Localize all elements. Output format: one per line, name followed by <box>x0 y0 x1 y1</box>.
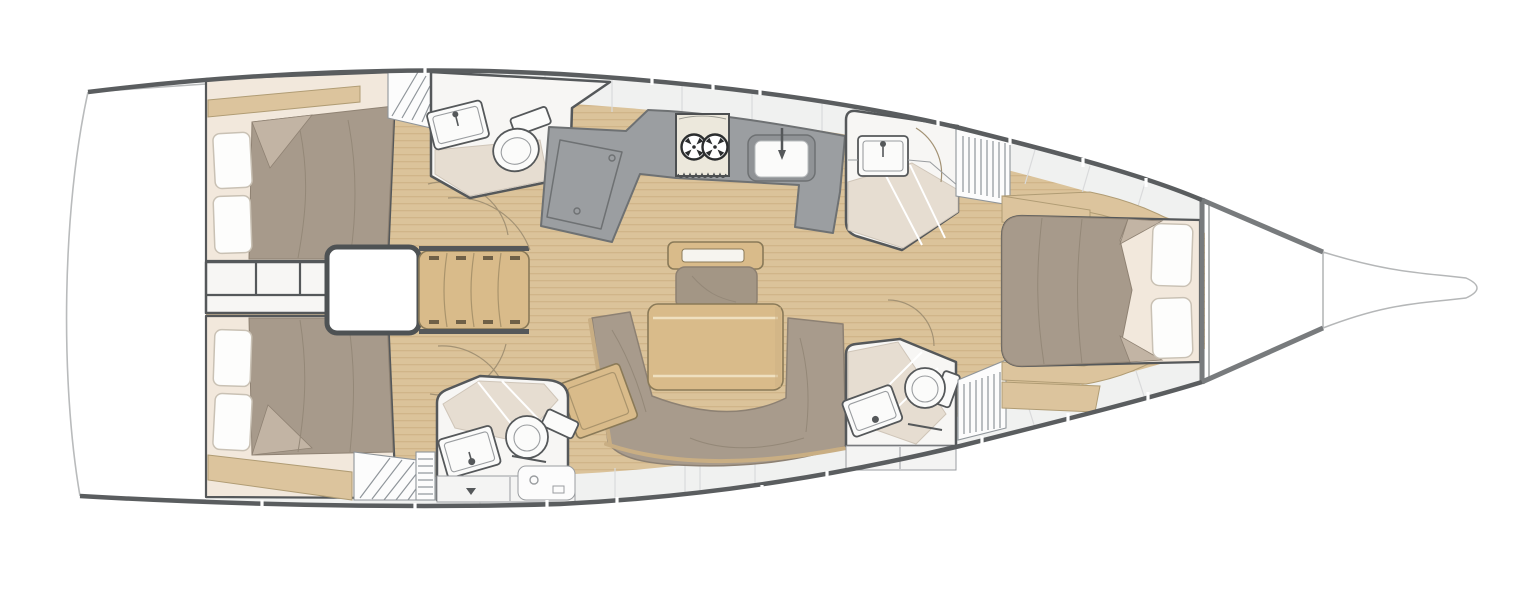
pillow-icon <box>213 195 252 253</box>
duvet <box>1002 216 1132 366</box>
steps-icon <box>419 246 529 334</box>
table-icon <box>648 304 783 390</box>
sink-icon <box>858 136 908 176</box>
head-port-forward <box>846 111 958 250</box>
aft-cabin-port <box>206 72 396 261</box>
bow-sprit-outline <box>1323 252 1477 328</box>
louvered-locker-icon <box>416 452 435 500</box>
pillow-icon <box>1151 297 1193 358</box>
pillow-icon <box>1151 223 1193 286</box>
pillow-icon <box>213 132 253 189</box>
forward-bench <box>668 242 763 309</box>
bench-bottom <box>1002 382 1100 412</box>
yacht-floorplan <box>0 0 1529 600</box>
galley-sink-icon <box>748 128 815 181</box>
floorplan-svg <box>0 0 1529 600</box>
pillow-icon <box>213 393 253 451</box>
transom-area <box>67 78 206 500</box>
swim-platform <box>67 78 206 500</box>
head-starboard-aft <box>416 376 579 502</box>
bow-section <box>1202 198 1477 384</box>
pillow-icon <box>213 329 252 386</box>
shower-tray <box>518 466 575 500</box>
mid-lockers <box>206 262 330 313</box>
stove-icon <box>676 114 729 178</box>
companionway-hatch-box <box>327 247 419 333</box>
